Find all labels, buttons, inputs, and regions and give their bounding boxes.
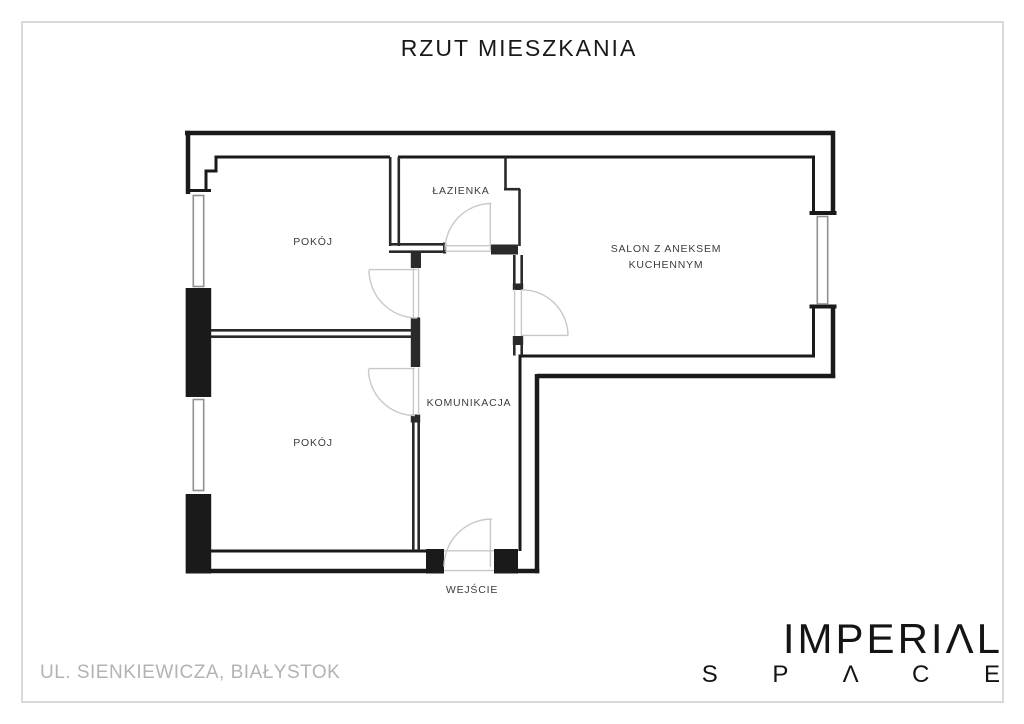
window-right-salon	[817, 217, 827, 305]
room-label-lazienka: ŁAZIENKA	[432, 185, 489, 197]
exterior-wall-outer-lines	[185, 131, 835, 573]
door-arc	[522, 290, 568, 336]
door-arc	[369, 369, 416, 416]
room-label-salon-line2: KUCHENNYM	[611, 258, 722, 271]
bottom-left-corner-pier	[186, 494, 211, 574]
room-label-komunikacja: KOMUNIKACJA	[427, 397, 512, 409]
room-label-salon-line1: SALON Z ANEKSEM	[611, 243, 722, 255]
door-arc	[445, 204, 492, 251]
windows	[193, 196, 827, 491]
door-salon	[515, 290, 568, 337]
room-label-salon: SALON Z ANEKSEM KUCHENNYM	[611, 243, 722, 272]
wall-piers	[186, 211, 837, 574]
entrance-label: WEJŚCIE	[446, 584, 498, 596]
door-bathroom	[445, 204, 492, 252]
exterior-wall-inner-lines	[186, 156, 814, 552]
brand-logo: IMPERIΛL S P Λ C E	[702, 618, 1000, 688]
room-label-pokoj-bottom: POKÓJ	[293, 437, 333, 449]
right-window-bottom-cap	[810, 305, 837, 309]
hall-wall-stub	[411, 253, 421, 268]
door-arc	[444, 519, 492, 567]
brand-logo-line2: S P Λ C E	[702, 662, 1024, 688]
door-pokoj-top	[369, 268, 419, 318]
address-text: UL. SIENKIEWICZA, BIAŁYSTOK	[40, 662, 340, 684]
room-label-pokoj-top: POKÓJ	[293, 236, 333, 248]
door-entrance	[444, 519, 494, 571]
bathroom-door-right-jamb	[491, 245, 518, 255]
salon-door-bottom-cap	[513, 336, 523, 345]
entrance-left-jamb	[426, 549, 444, 574]
left-middle-pier	[186, 288, 211, 397]
floor-plan-page: RZUT MIESZKANIA	[0, 0, 1024, 724]
entrance-right-jamb	[494, 549, 518, 574]
door-arc	[369, 270, 417, 318]
hall-wall-mid-bar	[411, 318, 420, 368]
brand-logo-line1: IMPERIΛL	[702, 618, 1003, 660]
door-pokoj-bottom	[369, 368, 419, 416]
salon-door-top-cap	[513, 284, 523, 291]
right-window-top-cap	[810, 211, 837, 215]
interior-partition-lines	[211, 157, 522, 551]
window-left-lower	[193, 400, 203, 491]
partition-caps	[411, 243, 523, 423]
window-left-upper	[193, 196, 203, 287]
